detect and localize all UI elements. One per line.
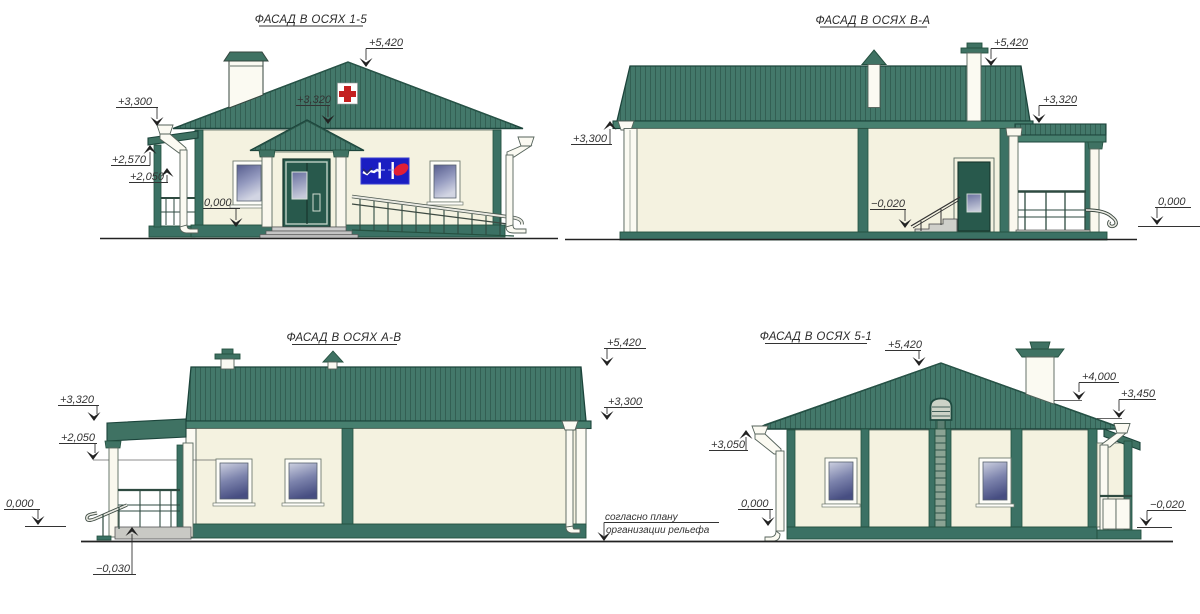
svg-text:+2,050: +2,050 (61, 432, 96, 444)
svg-text:ФАСАД В ОСЯХ В-А: ФАСАД В ОСЯХ В-А (816, 15, 931, 27)
svg-text:ФАСАД В ОСЯХ 1-5: ФАСАД В ОСЯХ 1-5 (255, 14, 368, 26)
svg-text:ФАСАД В ОСЯХ 5-1: ФАСАД В ОСЯХ 5-1 (760, 331, 872, 343)
svg-text:0,000: 0,000 (1158, 196, 1186, 208)
svg-text:+5,420: +5,420 (369, 37, 404, 49)
svg-text:−0,020: −0,020 (871, 198, 906, 210)
svg-text:+4,000: +4,000 (1082, 371, 1117, 383)
svg-text:−0,020: −0,020 (1150, 499, 1185, 511)
svg-text:+3,320: +3,320 (297, 94, 332, 106)
svg-text:+3,050: +3,050 (711, 439, 746, 451)
svg-text:0,000: 0,000 (6, 498, 34, 510)
svg-text:согласно плану: согласно плану (605, 512, 679, 523)
svg-text:+3,300: +3,300 (573, 133, 608, 145)
svg-text:организации рельефа: организации рельефа (606, 524, 710, 536)
svg-text:+3,300: +3,300 (608, 396, 643, 408)
svg-text:+5,420: +5,420 (994, 37, 1029, 49)
svg-text:ФАСАД В ОСЯХ А-В: ФАСАД В ОСЯХ А-В (287, 332, 402, 344)
svg-text:0,000: 0,000 (741, 498, 769, 510)
svg-text:+3,300: +3,300 (118, 96, 153, 108)
svg-text:+3,320: +3,320 (1043, 94, 1078, 106)
svg-text:0,000: 0,000 (204, 197, 232, 209)
svg-text:+5,420: +5,420 (888, 339, 923, 351)
svg-text:+3,450: +3,450 (1121, 388, 1156, 400)
svg-text:+5,420: +5,420 (607, 337, 642, 349)
svg-text:−0,030: −0,030 (96, 563, 131, 575)
svg-text:+2,050: +2,050 (130, 171, 165, 183)
svg-text:+2,570: +2,570 (112, 154, 147, 166)
svg-text:+3,320: +3,320 (60, 394, 95, 406)
